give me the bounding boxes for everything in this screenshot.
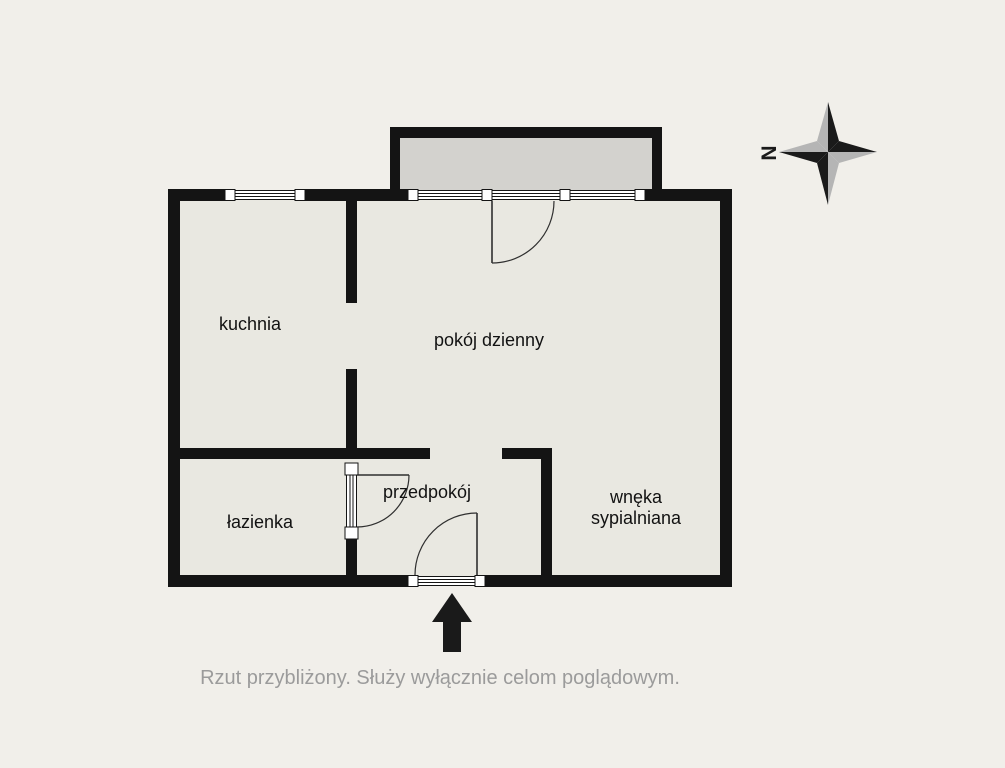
room-label-wneka-line1: wnęka — [609, 487, 663, 507]
balcony-door-glazing — [492, 190, 570, 201]
window-jamb — [295, 190, 305, 201]
balcony — [390, 127, 662, 192]
wall-segment — [485, 575, 732, 587]
room-label-lazienka: łazienka — [227, 512, 294, 532]
window-frame — [418, 191, 482, 200]
window-frame — [570, 191, 635, 200]
door-jamb — [408, 576, 418, 587]
wall-segment — [346, 369, 357, 448]
window-jamb — [225, 190, 235, 201]
living-room-window-right — [570, 190, 645, 201]
plan-caption: Rzut przybliżony. Służy wyłącznie celom … — [200, 667, 680, 689]
door-jamb — [345, 463, 358, 475]
window-frame — [492, 191, 560, 200]
wall-segment — [168, 189, 180, 587]
wall-segment — [652, 127, 662, 190]
windows — [225, 190, 645, 201]
room-label-pokoj-dzienny: pokój dzienny — [434, 330, 544, 350]
wall-segment — [305, 189, 408, 201]
window-jamb — [635, 190, 645, 201]
room-label-kuchnia: kuchnia — [219, 314, 282, 334]
wall-segment — [390, 127, 662, 138]
floor-plan-canvas: kuchnia pokój dzienny łazienka przedpokó… — [0, 0, 1005, 768]
door-frame — [347, 475, 357, 527]
window-jamb — [408, 190, 418, 201]
wall-segment — [168, 189, 225, 201]
door-threshold — [418, 577, 475, 586]
door-jamb — [475, 576, 485, 587]
balcony-floor — [400, 138, 652, 192]
wall-segment — [346, 539, 357, 575]
window-frame — [235, 191, 295, 200]
wall-segment — [168, 575, 408, 587]
compass-north-label: N — [758, 145, 781, 160]
wall-segment — [645, 189, 732, 201]
floor-plan-page: kuchnia pokój dzienny łazienka przedpokó… — [0, 0, 1005, 768]
wall-segment — [346, 201, 357, 303]
door-jamb — [345, 527, 358, 539]
room-label-przedpokoj: przedpokój — [383, 482, 471, 502]
wall-segment — [541, 448, 552, 575]
window-jamb — [560, 190, 570, 201]
wall-segment — [390, 127, 400, 190]
room-label-wneka-line2: sypialniana — [591, 508, 682, 528]
kitchen-window — [225, 190, 305, 201]
window-jamb — [482, 190, 492, 201]
wall-segment — [720, 189, 732, 587]
living-room-window-left — [408, 190, 492, 201]
wall-segment — [180, 448, 430, 459]
